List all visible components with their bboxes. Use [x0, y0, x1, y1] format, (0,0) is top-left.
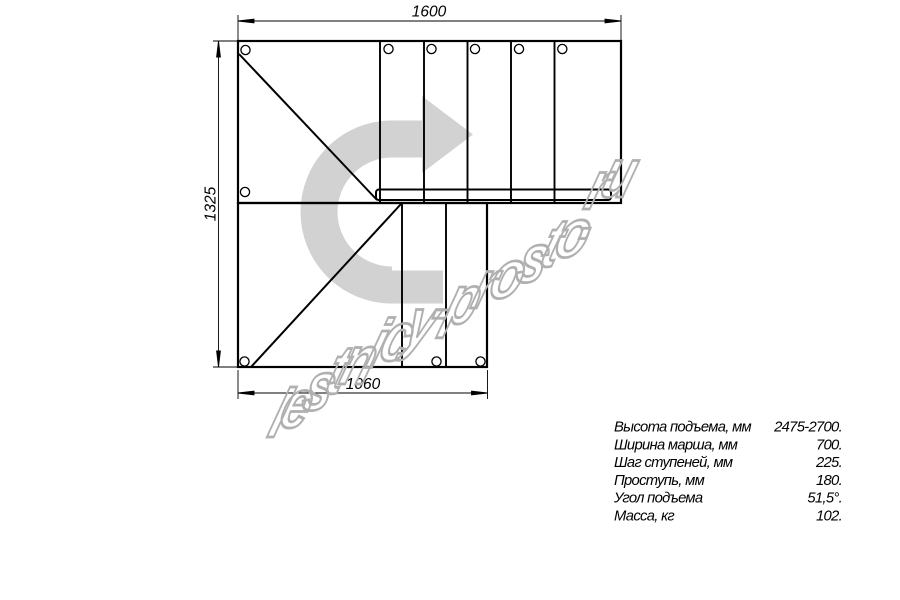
svg-text:2475-2700.: 2475-2700.: [773, 420, 842, 436]
svg-text:Угол подъема: Угол подъема: [613, 491, 703, 507]
svg-text:Проступь, мм: Проступь, мм: [614, 473, 705, 489]
svg-text:Масса, кг: Масса, кг: [614, 509, 674, 525]
svg-text:Ширина марша, мм: Ширина марша, мм: [614, 437, 738, 453]
svg-text:1325: 1325: [203, 186, 220, 221]
svg-text:Высота подъема, мм: Высота подъема, мм: [614, 420, 752, 436]
svg-text:180.: 180.: [816, 473, 842, 489]
svg-text:102.: 102.: [816, 509, 842, 525]
svg-text:51,5°.: 51,5°.: [807, 491, 842, 507]
svg-text:700.: 700.: [816, 437, 842, 453]
svg-text:1600: 1600: [412, 4, 447, 21]
svg-text:Шаг ступеней, мм: Шаг ступеней, мм: [614, 455, 733, 471]
svg-text:225.: 225.: [815, 455, 842, 471]
